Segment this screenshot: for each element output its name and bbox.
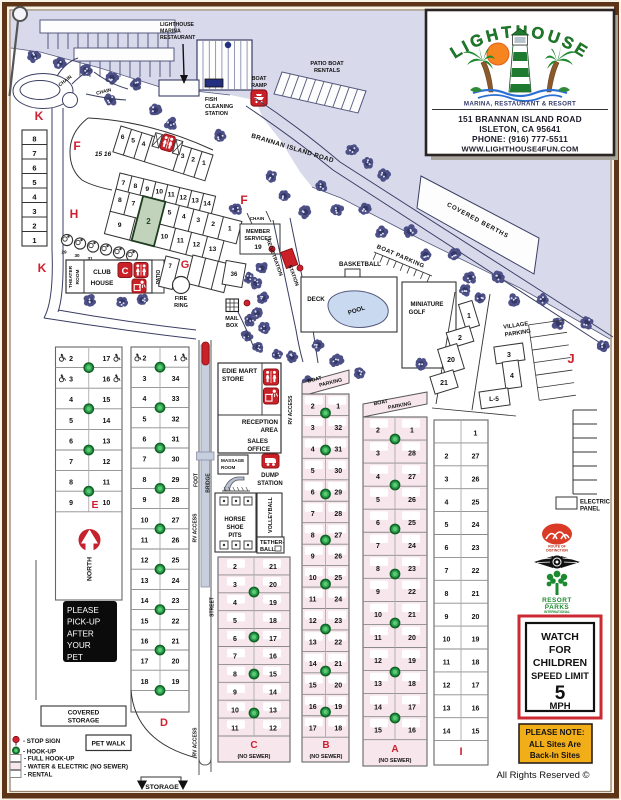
svg-text:12: 12 — [179, 195, 187, 202]
svg-text:20: 20 — [172, 659, 180, 666]
svg-text:VOLLEYBALL: VOLLEYBALL — [268, 496, 274, 533]
svg-text:YOUR: YOUR — [67, 641, 91, 650]
svg-text:DECK: DECK — [307, 296, 325, 303]
svg-text:31: 31 — [172, 437, 180, 444]
svg-text:3: 3 — [445, 476, 449, 483]
svg-text:1: 1 — [174, 356, 178, 363]
svg-text:ISLETON, CA 95641: ISLETON, CA 95641 — [479, 124, 561, 134]
svg-text:L-5: L-5 — [489, 396, 499, 403]
svg-text:7: 7 — [132, 200, 136, 207]
svg-text:G: G — [181, 259, 190, 271]
svg-text:15: 15 — [309, 682, 317, 689]
svg-text:D: D — [160, 717, 168, 729]
svg-text:5: 5 — [445, 522, 449, 529]
svg-text:12: 12 — [374, 658, 382, 665]
svg-text:29: 29 — [61, 250, 67, 255]
svg-text:14: 14 — [203, 200, 211, 207]
svg-text:13: 13 — [374, 681, 382, 688]
svg-text:12: 12 — [309, 618, 317, 625]
svg-text:- RENTAL: - RENTAL — [24, 772, 53, 779]
svg-text:K: K — [38, 261, 47, 275]
svg-text:BASKETBALL: BASKETBALL — [339, 261, 381, 268]
svg-text:Back-In Sites: Back-In Sites — [530, 751, 581, 760]
svg-text:PICK-UP: PICK-UP — [67, 618, 101, 627]
svg-text:14: 14 — [141, 598, 149, 605]
svg-text:RENTALS: RENTALS — [314, 68, 340, 74]
svg-text:16: 16 — [408, 727, 416, 734]
svg-text:14: 14 — [443, 728, 451, 735]
svg-text:14: 14 — [309, 661, 317, 668]
svg-text:3: 3 — [181, 153, 185, 160]
svg-text:10: 10 — [161, 233, 169, 240]
svg-text:SPEED LIMIT: SPEED LIMIT — [531, 671, 589, 681]
svg-text:7: 7 — [445, 568, 449, 575]
svg-text:16: 16 — [141, 639, 149, 646]
svg-text:FIRE: FIRE — [175, 296, 188, 302]
svg-text:6: 6 — [69, 438, 73, 445]
svg-text:2: 2 — [445, 453, 449, 460]
svg-text:27: 27 — [472, 453, 480, 460]
svg-text:30: 30 — [172, 457, 180, 464]
svg-text:SALES: SALES — [247, 438, 268, 445]
svg-text:OFFICE: OFFICE — [247, 446, 270, 453]
svg-text:STORAGE: STORAGE — [68, 718, 100, 725]
svg-text:6: 6 — [143, 437, 147, 444]
svg-text:36: 36 — [231, 272, 238, 278]
svg-text:K: K — [35, 109, 44, 123]
svg-text:A: A — [391, 744, 398, 755]
svg-text:1: 1 — [202, 160, 206, 167]
svg-text:FOR: FOR — [549, 644, 572, 656]
svg-text:CLEANING: CLEANING — [205, 104, 233, 110]
svg-text:7: 7 — [376, 543, 380, 550]
svg-text:4: 4 — [233, 600, 237, 607]
svg-text:10: 10 — [231, 707, 239, 714]
svg-text:18: 18 — [334, 725, 342, 732]
svg-text:WWW.LIGHTHOUSE4FUN.COM: WWW.LIGHTHOUSE4FUN.COM — [461, 145, 578, 154]
svg-text:24: 24 — [172, 578, 180, 585]
svg-text:8: 8 — [32, 135, 36, 144]
svg-text:(NO SEWER): (NO SEWER) — [310, 754, 343, 760]
svg-text:AREA: AREA — [260, 427, 278, 434]
svg-text:21: 21 — [408, 612, 416, 619]
svg-text:10: 10 — [309, 575, 317, 582]
svg-text:HOUSE: HOUSE — [91, 280, 114, 287]
svg-text:17: 17 — [408, 704, 416, 711]
svg-text:BOAT: BOAT — [252, 76, 268, 82]
svg-text:22: 22 — [172, 618, 180, 625]
svg-text:26: 26 — [172, 538, 180, 545]
svg-text:13: 13 — [141, 578, 149, 585]
svg-text:15: 15 — [102, 397, 110, 404]
svg-text:FISH: FISH — [205, 97, 217, 103]
svg-text:3: 3 — [69, 377, 73, 384]
svg-text:5: 5 — [143, 416, 147, 423]
svg-text:NORTH: NORTH — [87, 557, 94, 581]
svg-text:8: 8 — [311, 532, 315, 539]
svg-text:18: 18 — [472, 660, 480, 667]
svg-text:6: 6 — [376, 520, 380, 527]
svg-text:STREET: STREET — [210, 597, 216, 617]
svg-text:- STOP SIGN: - STOP SIGN — [23, 738, 61, 745]
svg-text:3: 3 — [507, 352, 511, 359]
svg-text:11: 11 — [443, 660, 451, 667]
svg-text:28: 28 — [408, 451, 416, 458]
svg-text:24: 24 — [334, 597, 342, 604]
svg-text:19: 19 — [269, 600, 277, 607]
svg-text:HORSE: HORSE — [224, 517, 245, 523]
svg-text:12: 12 — [141, 558, 149, 565]
svg-text:28: 28 — [334, 511, 342, 518]
svg-text:3: 3 — [196, 217, 200, 224]
svg-text:7: 7 — [32, 149, 36, 158]
svg-text:- HOOK-UP: - HOOK-UP — [23, 749, 56, 756]
svg-text:17: 17 — [309, 725, 317, 732]
svg-text:DISTINCTION: DISTINCTION — [546, 549, 568, 553]
svg-text:13: 13 — [102, 438, 110, 445]
svg-text:BALL: BALL — [260, 547, 275, 553]
svg-text:5: 5 — [168, 210, 172, 217]
svg-text:16: 16 — [309, 704, 317, 711]
svg-text:14: 14 — [374, 704, 382, 711]
svg-text:9: 9 — [233, 689, 237, 696]
svg-text:1: 1 — [336, 404, 340, 411]
svg-text:5: 5 — [311, 468, 315, 475]
svg-text:18: 18 — [269, 618, 277, 625]
svg-text:13: 13 — [269, 707, 277, 714]
svg-text:9: 9 — [376, 589, 380, 596]
svg-text:17: 17 — [141, 659, 149, 666]
svg-text:13: 13 — [191, 197, 199, 204]
svg-text:25: 25 — [408, 520, 416, 527]
svg-text:RESTAURANT: RESTAURANT — [160, 35, 196, 41]
svg-text:11: 11 — [168, 192, 175, 199]
svg-text:AFTER: AFTER — [67, 629, 94, 638]
svg-text:16: 16 — [102, 377, 110, 384]
svg-text:7: 7 — [69, 459, 73, 466]
svg-text:7: 7 — [233, 654, 237, 661]
svg-text:24: 24 — [408, 543, 416, 550]
svg-text:25: 25 — [172, 558, 180, 565]
svg-text:MAIL: MAIL — [225, 316, 239, 322]
svg-text:19: 19 — [172, 679, 180, 686]
svg-text:8: 8 — [143, 477, 147, 484]
svg-text:ELECTRIC: ELECTRIC — [580, 500, 611, 506]
svg-text:RING: RING — [174, 303, 188, 309]
svg-text:17: 17 — [102, 356, 110, 363]
svg-text:12: 12 — [193, 242, 201, 249]
svg-text:3: 3 — [233, 582, 237, 589]
svg-text:20: 20 — [472, 614, 480, 621]
svg-text:21: 21 — [440, 380, 448, 387]
svg-text:E: E — [91, 499, 98, 511]
svg-text:3: 3 — [311, 425, 315, 432]
svg-text:9: 9 — [311, 554, 315, 561]
svg-text:FOOT: FOOT — [194, 473, 200, 487]
svg-text:COVERED: COVERED — [68, 710, 100, 717]
svg-text:5: 5 — [69, 418, 73, 425]
svg-text:CHILDREN: CHILDREN — [533, 657, 587, 669]
svg-text:26: 26 — [472, 476, 480, 483]
svg-text:8: 8 — [133, 183, 137, 190]
svg-text:2: 2 — [211, 221, 215, 228]
svg-text:4: 4 — [445, 499, 449, 506]
svg-text:9: 9 — [143, 497, 147, 504]
svg-text:2: 2 — [146, 217, 151, 226]
svg-text:5: 5 — [32, 178, 36, 187]
svg-text:19: 19 — [334, 704, 342, 711]
svg-text:F: F — [240, 193, 247, 207]
svg-text:23: 23 — [472, 545, 480, 552]
svg-text:21: 21 — [334, 661, 342, 668]
svg-text:All Rights Reserved ©: All Rights Reserved © — [496, 770, 589, 781]
svg-text:9: 9 — [145, 186, 149, 193]
svg-text:PET WALK: PET WALK — [91, 741, 125, 748]
svg-text:18: 18 — [141, 679, 149, 686]
svg-text:8: 8 — [376, 566, 380, 573]
svg-text:24: 24 — [472, 522, 480, 529]
svg-text:MARINA: MARINA — [160, 29, 181, 35]
svg-text:15: 15 — [472, 728, 480, 735]
svg-text:10: 10 — [155, 189, 163, 196]
svg-text:20: 20 — [334, 682, 342, 689]
svg-text:DUMP: DUMP — [261, 473, 279, 479]
svg-text:34: 34 — [172, 376, 180, 383]
svg-text:INTERNATIONAL: INTERNATIONAL — [544, 610, 570, 614]
svg-text:4: 4 — [510, 373, 514, 380]
svg-text:7: 7 — [122, 180, 126, 187]
svg-text:STORE: STORE — [222, 376, 245, 383]
svg-text:19: 19 — [254, 244, 262, 251]
svg-text:23: 23 — [172, 598, 180, 605]
svg-text:6: 6 — [32, 164, 36, 173]
svg-text:PHONE: (916) 777-5511: PHONE: (916) 777-5511 — [472, 134, 568, 144]
svg-text:10: 10 — [374, 612, 382, 619]
svg-text:22: 22 — [472, 568, 480, 575]
svg-text:23: 23 — [334, 618, 342, 625]
svg-text:LIGHTHOUSE: LIGHTHOUSE — [160, 22, 195, 28]
svg-text:1: 1 — [474, 431, 478, 438]
svg-text:CHAIN: CHAIN — [250, 216, 265, 221]
svg-text:5: 5 — [376, 497, 380, 504]
svg-text:PANEL: PANEL — [580, 507, 600, 513]
svg-text:RV ACCESS: RV ACCESS — [193, 513, 199, 543]
svg-text:4: 4 — [182, 213, 186, 220]
svg-text:RV ACCESS: RV ACCESS — [193, 727, 199, 757]
svg-text:23: 23 — [408, 566, 416, 573]
svg-text:B: B — [322, 740, 329, 751]
svg-text:21: 21 — [172, 639, 180, 646]
svg-text:12: 12 — [269, 725, 277, 732]
svg-text:12: 12 — [443, 682, 451, 689]
svg-text:10: 10 — [141, 517, 149, 524]
svg-text:17: 17 — [269, 636, 277, 643]
svg-text:PATIO BOAT: PATIO BOAT — [310, 61, 344, 67]
svg-text:19: 19 — [408, 658, 416, 665]
svg-text:2: 2 — [376, 428, 380, 435]
svg-text:7: 7 — [311, 511, 315, 518]
svg-text:(NO SEWER): (NO SEWER) — [238, 754, 271, 760]
svg-text:TETHER-: TETHER- — [260, 540, 284, 546]
svg-text:17: 17 — [472, 682, 480, 689]
svg-text:15: 15 — [269, 672, 277, 679]
svg-text:PITS: PITS — [228, 533, 241, 539]
svg-text:1: 1 — [32, 236, 36, 245]
svg-text:STATION: STATION — [205, 111, 228, 117]
svg-text:15: 15 — [141, 618, 149, 625]
svg-text:27: 27 — [408, 474, 416, 481]
svg-text:(NO SEWER): (NO SEWER) — [379, 758, 412, 764]
svg-text:20: 20 — [269, 582, 277, 589]
svg-text:11: 11 — [309, 597, 317, 604]
svg-text:2: 2 — [143, 356, 147, 363]
svg-text:2: 2 — [311, 404, 315, 411]
svg-text:4: 4 — [143, 396, 147, 403]
svg-text:I: I — [459, 746, 462, 758]
svg-text:BRIDGE: BRIDGE — [206, 473, 212, 493]
svg-text:2: 2 — [69, 356, 73, 363]
svg-text:11: 11 — [177, 238, 184, 245]
svg-text:20: 20 — [447, 357, 455, 364]
svg-text:25: 25 — [334, 575, 342, 582]
svg-text:RECEPTION: RECEPTION — [242, 419, 279, 426]
svg-text:5: 5 — [233, 618, 237, 625]
svg-text:8: 8 — [118, 197, 122, 204]
svg-text:10: 10 — [102, 500, 110, 507]
svg-text:6: 6 — [311, 489, 315, 496]
svg-text:15: 15 — [374, 727, 382, 734]
svg-text:16: 16 — [472, 705, 480, 712]
svg-text:WATCH: WATCH — [541, 631, 579, 643]
svg-text:25: 25 — [472, 499, 480, 506]
svg-text:31: 31 — [334, 446, 342, 453]
svg-text:C: C — [122, 266, 129, 277]
svg-text:27: 27 — [334, 532, 342, 539]
svg-text:8: 8 — [445, 591, 449, 598]
svg-text:PET: PET — [67, 653, 83, 662]
svg-text:4: 4 — [311, 446, 315, 453]
svg-text:3: 3 — [32, 207, 36, 216]
svg-text:28: 28 — [172, 497, 180, 504]
svg-text:29: 29 — [172, 477, 180, 484]
svg-text:21: 21 — [472, 591, 480, 598]
svg-text:30: 30 — [74, 253, 80, 258]
svg-text:11: 11 — [141, 538, 149, 545]
svg-text:MARINA, RESTAURANT & RESORT: MARINA, RESTAURANT & RESORT — [464, 101, 576, 108]
svg-text:ALL Sites Are: ALL Sites Are — [529, 740, 582, 749]
svg-text:11: 11 — [103, 480, 111, 487]
svg-text:1: 1 — [410, 428, 414, 435]
svg-text:STORAGE: STORAGE — [145, 784, 179, 791]
svg-text:MPH: MPH — [549, 701, 570, 712]
svg-text:13: 13 — [309, 640, 317, 647]
svg-text:STATION: STATION — [257, 481, 282, 487]
svg-text:26: 26 — [408, 497, 416, 504]
svg-text:33: 33 — [172, 396, 180, 403]
svg-text:MINIATURE: MINIATURE — [411, 302, 444, 308]
svg-text:CLUB: CLUB — [93, 269, 111, 276]
svg-text:2: 2 — [458, 335, 462, 342]
svg-text:29: 29 — [334, 489, 342, 496]
svg-text:11: 11 — [231, 725, 239, 732]
svg-text:14: 14 — [102, 418, 110, 425]
svg-text:14: 14 — [269, 689, 277, 696]
svg-text:22: 22 — [334, 640, 342, 647]
svg-text:3: 3 — [143, 376, 147, 383]
svg-text:15 16: 15 16 — [95, 151, 112, 158]
svg-text:F: F — [73, 139, 80, 153]
svg-text:27: 27 — [172, 517, 180, 524]
svg-text:12: 12 — [102, 459, 110, 466]
svg-text:6: 6 — [121, 134, 125, 141]
svg-text:RV ACCESS: RV ACCESS — [288, 395, 294, 425]
svg-text:- FULL HOOK-UP: - FULL HOOK-UP — [24, 756, 74, 763]
svg-text:6: 6 — [233, 636, 237, 643]
svg-text:30: 30 — [334, 468, 342, 475]
svg-text:22: 22 — [408, 589, 416, 596]
svg-text:2: 2 — [32, 222, 36, 231]
svg-text:9: 9 — [118, 222, 122, 229]
svg-text:MASSAGE: MASSAGE — [221, 458, 244, 463]
svg-text:8: 8 — [69, 480, 73, 487]
svg-text:H: H — [70, 207, 79, 221]
svg-text:2: 2 — [233, 564, 237, 571]
svg-text:6: 6 — [445, 545, 449, 552]
svg-text:8: 8 — [233, 672, 237, 679]
svg-text:21: 21 — [269, 564, 277, 571]
svg-text:18: 18 — [408, 681, 416, 688]
svg-text:26: 26 — [334, 554, 342, 561]
svg-text:RESORT: RESORT — [542, 597, 572, 604]
svg-text:20: 20 — [408, 635, 416, 642]
svg-text:13: 13 — [443, 705, 451, 712]
svg-text:GOLF: GOLF — [409, 310, 426, 316]
svg-text:151 BRANNAN ISLAND ROAD: 151 BRANNAN ISLAND ROAD — [458, 114, 582, 124]
svg-text:4: 4 — [69, 397, 73, 404]
svg-text:3: 3 — [376, 451, 380, 458]
svg-text:7: 7 — [143, 457, 147, 464]
svg-text:C: C — [250, 740, 257, 751]
svg-text:4: 4 — [142, 141, 146, 148]
svg-text:J: J — [567, 351, 574, 366]
svg-text:PLEASE NOTE:: PLEASE NOTE: — [525, 728, 584, 737]
svg-text:10: 10 — [443, 637, 451, 644]
svg-text:32: 32 — [172, 416, 180, 423]
svg-text:ROOM: ROOM — [221, 465, 235, 470]
svg-text:1: 1 — [467, 313, 471, 320]
svg-text:SHOE: SHOE — [226, 525, 243, 531]
svg-text:2: 2 — [191, 156, 195, 163]
svg-text:1: 1 — [228, 225, 232, 232]
svg-text:16: 16 — [269, 654, 277, 661]
svg-text:MEMBER: MEMBER — [246, 229, 270, 235]
svg-text:11: 11 — [374, 635, 382, 642]
svg-text:9: 9 — [69, 500, 73, 507]
svg-text:BOX: BOX — [226, 323, 238, 329]
svg-text:4: 4 — [376, 474, 380, 481]
svg-text:5: 5 — [131, 138, 135, 145]
svg-text:PLEASE: PLEASE — [67, 606, 99, 615]
svg-text:ROOM: ROOM — [75, 270, 81, 285]
svg-text:9: 9 — [445, 614, 449, 621]
svg-text:- WATER & ELECTRIC (NO SEWER): - WATER & ELECTRIC (NO SEWER) — [24, 764, 128, 771]
svg-text:13: 13 — [209, 246, 217, 253]
svg-text:RAMP: RAMP — [251, 83, 267, 89]
svg-text:32: 32 — [334, 425, 342, 432]
svg-text:19: 19 — [472, 637, 480, 644]
svg-text:EDIE MART: EDIE MART — [222, 368, 257, 375]
svg-text:THEATER: THEATER — [68, 265, 74, 288]
